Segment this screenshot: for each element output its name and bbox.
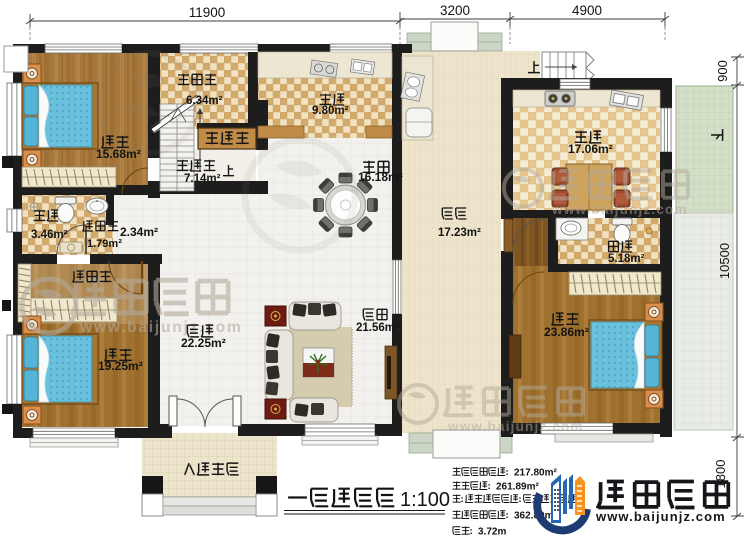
svg-text:900: 900: [715, 60, 730, 82]
svg-text:3.46m²: 3.46m²: [31, 229, 68, 241]
svg-text:23.86m²: 23.86m²: [544, 325, 589, 339]
svg-text:3200: 3200: [440, 3, 470, 18]
svg-text:19.25m²: 19.25m²: [98, 359, 143, 373]
svg-text:5.18m²: 5.18m²: [608, 253, 645, 265]
svg-text:7.14m²: 7.14m²: [184, 173, 221, 185]
svg-text:11900: 11900: [189, 5, 226, 20]
svg-text:1:100: 1:100: [400, 489, 450, 511]
svg-text:www.baijunjz.com: www.baijunjz.com: [595, 509, 726, 524]
svg-text:6.34m²: 6.34m²: [186, 95, 223, 107]
svg-text:2.34m²: 2.34m²: [120, 225, 158, 239]
svg-text:3.72m: 3.72m: [478, 527, 506, 538]
svg-text:4900: 4900: [572, 3, 602, 18]
svg-text:17.23m²: 17.23m²: [438, 227, 481, 239]
svg-text:16.18m²: 16.18m²: [358, 170, 403, 184]
svg-text:15.68m²: 15.68m²: [96, 147, 141, 161]
svg-text:www.baijunjz.com: www.baijunjz.com: [551, 202, 688, 217]
svg-text:261.89m²: 261.89m²: [496, 482, 539, 493]
svg-text:1.79m²: 1.79m²: [87, 238, 122, 250]
svg-text:21.56m²: 21.56m²: [356, 322, 399, 334]
svg-text:22.25m²: 22.25m²: [181, 336, 226, 350]
svg-text:www.baijunjz.com: www.baijunjz.com: [79, 319, 243, 336]
svg-text:9.80m²: 9.80m²: [312, 105, 349, 117]
svg-text:17.06m²: 17.06m²: [568, 142, 613, 156]
svg-text:10500: 10500: [717, 243, 732, 279]
svg-text:217.80m²: 217.80m²: [514, 468, 557, 479]
svg-text:www.baijunjz.com: www.baijunjz.com: [447, 419, 584, 434]
